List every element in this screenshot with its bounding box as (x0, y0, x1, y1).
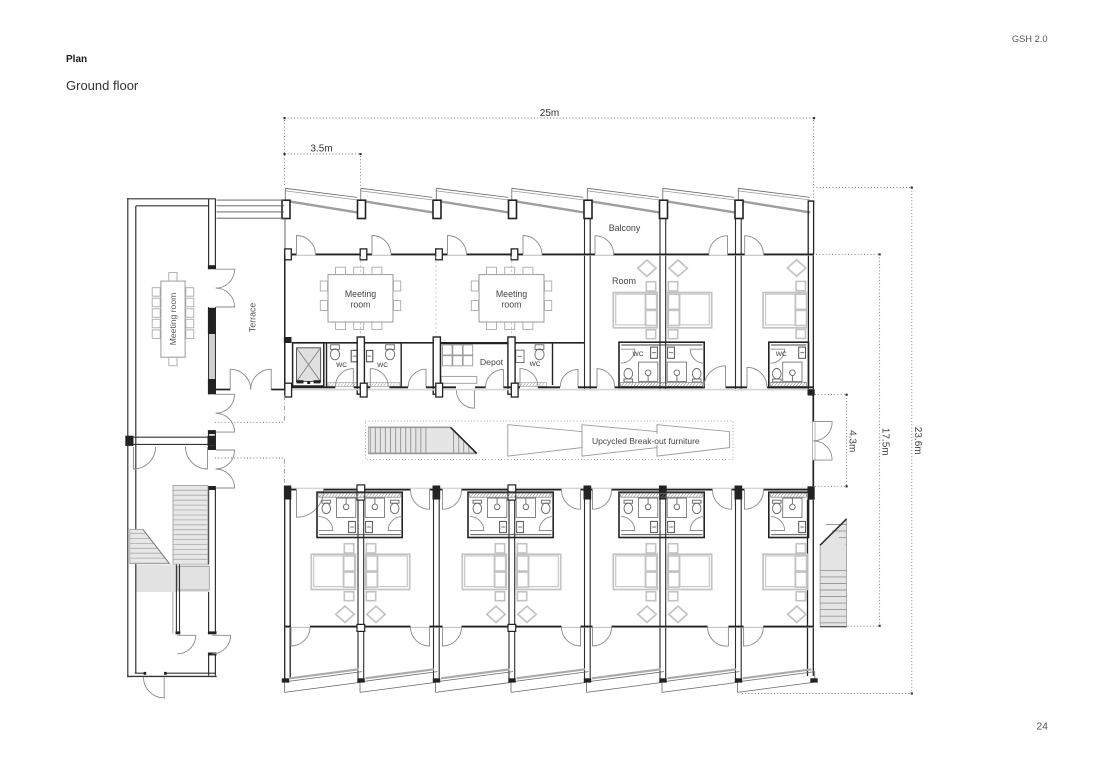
svg-text:room: room (350, 299, 370, 309)
svg-text:Plan: Plan (66, 54, 87, 65)
svg-text:WC: WC (776, 351, 787, 358)
svg-text:WC: WC (530, 361, 541, 368)
svg-text:23.6m: 23.6m (912, 427, 923, 455)
svg-text:Meeting room: Meeting room (168, 293, 178, 346)
svg-text:Meeting: Meeting (345, 289, 376, 299)
svg-text:WC: WC (336, 362, 347, 369)
svg-text:3.5m: 3.5m (310, 144, 332, 155)
svg-text:Meeting: Meeting (496, 289, 527, 299)
svg-text:4.3m: 4.3m (847, 430, 858, 452)
svg-text:17.5m: 17.5m (879, 428, 890, 456)
svg-text:25m: 25m (540, 108, 559, 119)
svg-text:Terrace: Terrace (247, 303, 257, 332)
svg-text:24: 24 (1036, 721, 1048, 733)
svg-text:WC: WC (377, 362, 388, 369)
svg-text:GSH 2.0: GSH 2.0 (1012, 34, 1048, 44)
svg-text:Room: Room (612, 276, 636, 286)
svg-text:Depot: Depot (480, 357, 504, 367)
svg-text:WC: WC (633, 351, 644, 358)
svg-text:Ground floor: Ground floor (66, 78, 139, 93)
svg-text:Balcony: Balcony (609, 223, 641, 233)
svg-text:Upcycled Break-out furniture: Upcycled Break-out furniture (592, 436, 700, 446)
svg-text:room: room (501, 299, 521, 309)
